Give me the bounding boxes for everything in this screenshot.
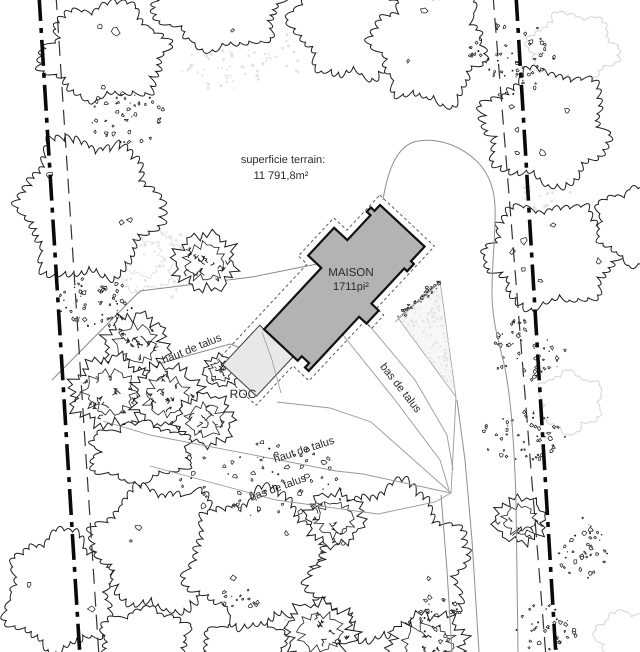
svg-text:ROC: ROC bbox=[230, 387, 257, 401]
svg-text:11 791,8m²: 11 791,8m² bbox=[254, 170, 309, 182]
svg-text:1711pi²: 1711pi² bbox=[333, 281, 369, 293]
svg-text:superficie terrain:: superficie terrain: bbox=[241, 154, 325, 166]
svg-text:MAISON: MAISON bbox=[328, 267, 373, 279]
